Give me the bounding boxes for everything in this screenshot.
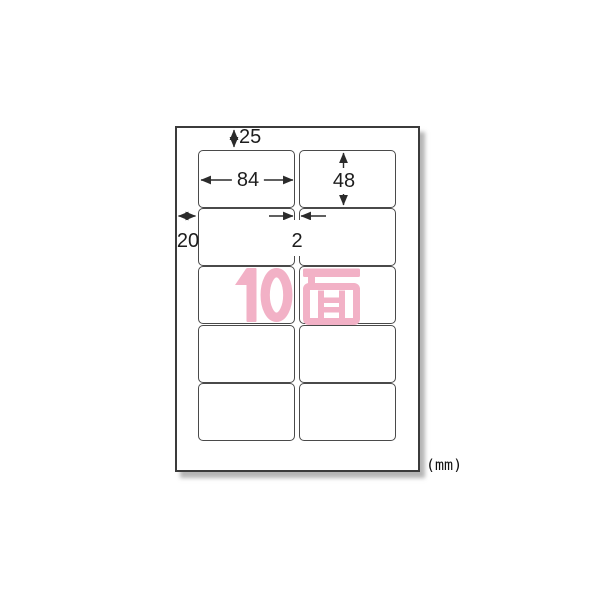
label-cell <box>299 383 396 441</box>
top-margin-value: 25 <box>239 126 261 148</box>
label-cell <box>299 266 396 324</box>
label-height-value: 48 <box>331 168 357 194</box>
count-label-text: 10面 <box>0 0 1 1</box>
label-cell <box>198 383 295 441</box>
left-margin-value: 20 <box>177 230 199 252</box>
label-cell <box>299 208 396 266</box>
label-grid <box>177 128 418 470</box>
label-cell <box>198 325 295 383</box>
label-cell <box>198 208 295 266</box>
label-cell <box>299 325 396 383</box>
label-cell <box>198 266 295 324</box>
diagram-canvas: 10面 25 84 48 20 2 (mm) <box>0 0 600 600</box>
label-sheet <box>175 126 420 472</box>
column-gap-value: 2 <box>282 220 311 256</box>
label-width-value: 84 <box>232 169 264 191</box>
unit-note: (mm) <box>426 456 462 474</box>
